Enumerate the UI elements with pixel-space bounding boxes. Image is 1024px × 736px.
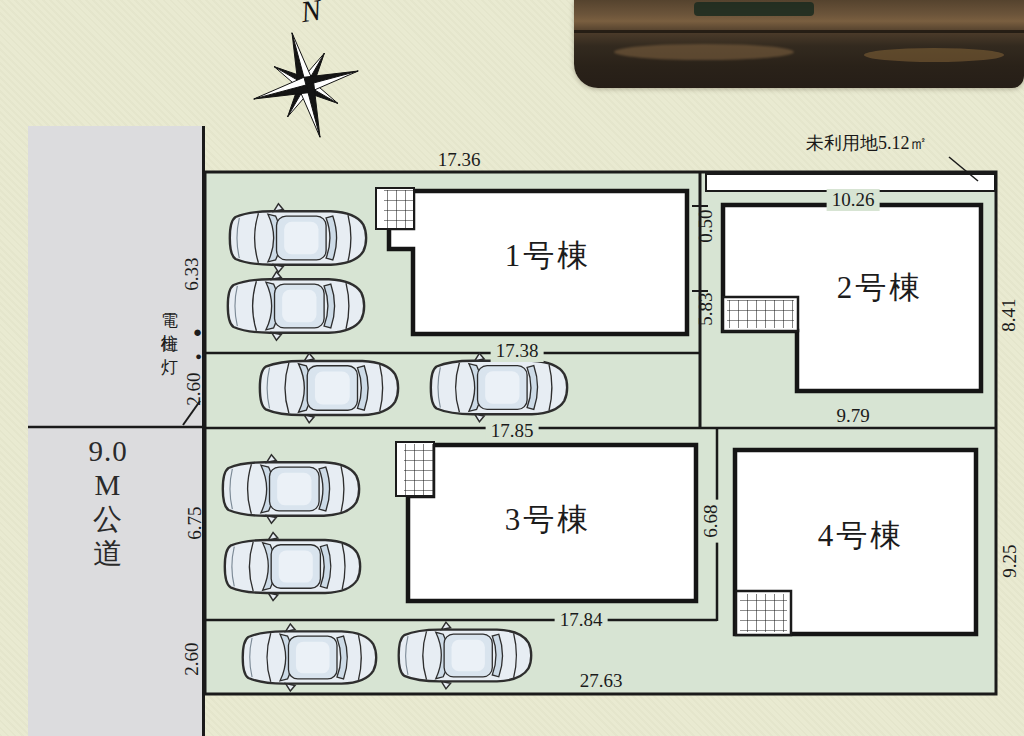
parking-car [260, 353, 398, 423]
parking-car [225, 532, 360, 600]
dim-17-85: 17.85 [486, 420, 539, 442]
dim-2-60-lower: 2.60 [181, 642, 203, 675]
dim-17-38: 17.38 [491, 340, 544, 362]
building-3-porch-grid [396, 442, 434, 496]
dim-6-75: 6.75 [184, 506, 206, 539]
dim-17-84: 17.84 [555, 609, 608, 631]
unused-land-label: 未利用地5.12㎡ [806, 131, 928, 155]
parking-car [243, 624, 376, 691]
dim-6-68: 6.68 [700, 499, 722, 542]
dim-10-26: 10.26 [827, 189, 880, 211]
parking-car [230, 204, 366, 273]
building-2-label: 2号棟 [837, 267, 924, 309]
parking-car [431, 353, 567, 422]
building-1-label: 1号棟 [505, 235, 592, 277]
dim-5-83: 5.83 [695, 292, 717, 325]
dim-0-50: 0.50 [695, 209, 717, 242]
building-2-porch-grid [723, 297, 798, 331]
site-drawing [0, 0, 1024, 736]
building-4-porch-grid [736, 591, 791, 635]
dim-6-33: 6.33 [181, 257, 203, 290]
dim-9-25: 9.25 [999, 544, 1021, 577]
dim-17-36: 17.36 [438, 149, 481, 171]
dim-2-60-upper: 2.60 [183, 372, 205, 405]
building-4-label: 4号棟 [818, 515, 905, 557]
parking-car [399, 622, 532, 689]
building-3-label: 3号棟 [505, 499, 592, 541]
dim-27-63: 27.63 [580, 670, 623, 692]
parking-car [228, 272, 364, 341]
dim-9-79: 9.79 [836, 405, 869, 427]
site-plan: N 電柱 ● [0, 0, 1024, 736]
parking-car [223, 455, 359, 524]
dim-8-41: 8.41 [998, 298, 1020, 331]
building-1-porch-grid [376, 188, 414, 229]
